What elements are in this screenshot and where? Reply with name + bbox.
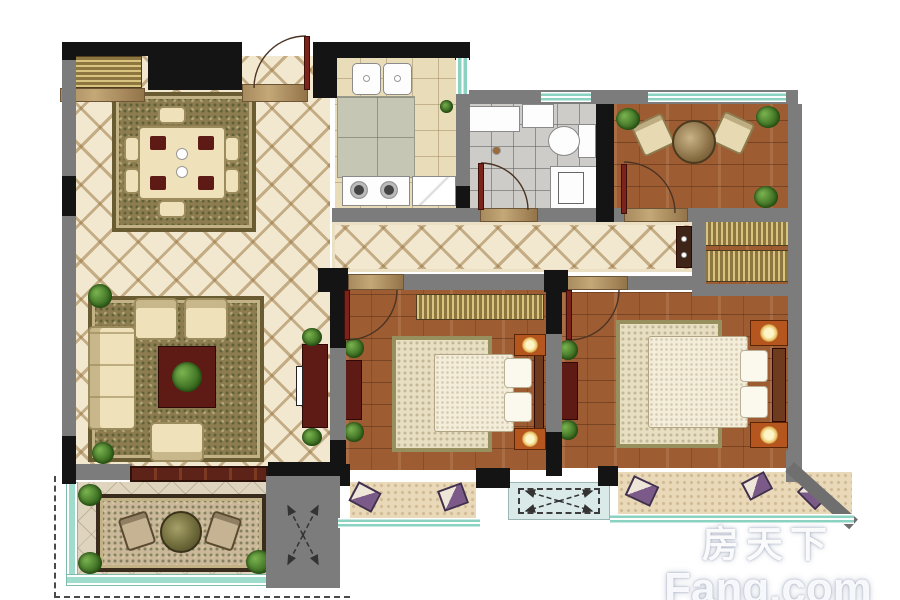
wall-segment xyxy=(76,464,132,480)
dresser xyxy=(344,360,362,420)
wardrobe xyxy=(416,294,544,320)
wall-pier xyxy=(335,42,458,58)
bed-mattress xyxy=(648,336,748,428)
wall-pier xyxy=(148,42,242,90)
wall-segment xyxy=(692,208,706,290)
wall-segment xyxy=(62,42,76,484)
bed-headboard xyxy=(534,352,544,436)
window xyxy=(541,92,591,102)
bed-mattress xyxy=(434,354,514,432)
wall-segment xyxy=(330,348,346,440)
plant-icon xyxy=(172,362,202,392)
wall-pier xyxy=(62,176,76,216)
wall-segment xyxy=(538,208,596,222)
plant-icon xyxy=(344,422,364,442)
wall-pier xyxy=(62,436,76,484)
dining-chair xyxy=(124,168,140,194)
wardrobe-cabinet xyxy=(702,250,794,282)
plant-icon xyxy=(754,186,778,208)
wall-pier xyxy=(62,42,150,56)
plant-icon xyxy=(92,442,114,464)
lamp-icon xyxy=(522,337,538,353)
tv-cabinet xyxy=(302,344,328,428)
cabinet-knob xyxy=(681,236,687,242)
balcony-boundary-dashed xyxy=(54,476,56,598)
armchair xyxy=(150,422,204,462)
toilet-tank xyxy=(578,124,596,158)
pillow xyxy=(740,350,768,382)
wall-segment xyxy=(692,284,798,296)
sink-drain xyxy=(394,75,401,82)
pillow xyxy=(504,392,532,422)
bed-headboard xyxy=(772,348,786,422)
wall-segment xyxy=(332,208,480,222)
balcony-glass-wall xyxy=(66,574,274,586)
wall-pier xyxy=(546,290,562,334)
dining-chair xyxy=(158,200,186,218)
dining-chair xyxy=(158,106,186,124)
wall-segment xyxy=(546,334,562,432)
plant-icon xyxy=(756,106,780,128)
bay-window-glass xyxy=(338,518,480,528)
plant-icon xyxy=(440,100,453,113)
round-tea-table xyxy=(672,120,716,164)
plant-icon xyxy=(302,428,322,446)
entry-threshold xyxy=(242,84,308,102)
dining-chair xyxy=(224,168,240,194)
wall-pier xyxy=(544,270,568,292)
window xyxy=(648,92,786,102)
pillow xyxy=(504,358,532,388)
leisure-threshold xyxy=(624,208,688,222)
dining-chair xyxy=(124,136,140,162)
balcony-sliding-door xyxy=(130,466,268,482)
plant-icon xyxy=(78,552,102,574)
stove-burner xyxy=(350,181,368,199)
balcony-glass-wall xyxy=(66,482,78,586)
pillow xyxy=(740,386,768,418)
dresser xyxy=(560,362,578,420)
bedroom-master-threshold xyxy=(566,276,628,290)
lamp-icon xyxy=(522,431,538,447)
watermark: 房天下 Fang.com xyxy=(648,514,888,600)
tv-screen xyxy=(296,366,303,406)
refrigerator xyxy=(412,176,456,206)
sideboard xyxy=(72,56,142,88)
wall-pier xyxy=(596,104,614,222)
bathroom-door-leaf xyxy=(478,163,484,210)
plant-icon xyxy=(302,328,322,346)
sink-drain xyxy=(363,75,370,82)
platform-x-symbol xyxy=(518,488,600,514)
lamp-icon xyxy=(760,426,778,444)
plant-icon xyxy=(88,284,112,308)
window xyxy=(456,58,469,94)
entry-door-leaf xyxy=(304,36,310,90)
plant-icon xyxy=(344,338,364,358)
watermark-chinese: 房天下 xyxy=(648,514,888,568)
watermark-fang-logo: Fang.com xyxy=(648,564,888,600)
wall-pier xyxy=(546,432,562,476)
bedroom-master-door-leaf xyxy=(566,290,572,340)
leisure-door-leaf xyxy=(621,164,627,214)
bedroom-middle-threshold xyxy=(348,274,404,290)
plant-icon xyxy=(78,484,102,506)
washer-counter xyxy=(468,106,520,132)
floor-plan: 房天下 Fang.com xyxy=(0,0,900,600)
bathroom-threshold xyxy=(480,208,538,222)
wall-pier xyxy=(313,42,337,98)
wall-pier xyxy=(598,466,618,486)
placemat xyxy=(198,176,214,190)
wall-segment xyxy=(628,276,694,290)
bedroom-middle-door-leaf xyxy=(344,290,350,340)
placemat xyxy=(150,176,166,190)
balcony-boundary-dashed xyxy=(54,596,350,598)
stove-burner xyxy=(380,181,398,199)
plant-icon xyxy=(616,108,640,130)
floor-drain xyxy=(492,146,501,155)
shaft-frame xyxy=(266,476,340,588)
armchair xyxy=(134,298,178,340)
placemat xyxy=(198,136,214,150)
sofa xyxy=(88,326,136,430)
wall-pier xyxy=(476,468,510,488)
bath-shelf xyxy=(522,104,554,128)
kitchen-counter xyxy=(337,96,415,178)
lamp-icon xyxy=(760,324,778,342)
cabinet-knob xyxy=(681,252,687,258)
plate xyxy=(176,148,188,160)
corridor-floor xyxy=(332,222,692,272)
armchair xyxy=(184,298,228,340)
placemat xyxy=(150,136,166,150)
plate xyxy=(176,166,188,178)
vanity-basin xyxy=(558,172,584,204)
wall-segment xyxy=(404,274,546,290)
toilet-bowl xyxy=(548,126,580,156)
corridor-end-cabinet xyxy=(676,226,692,268)
balcony-tea-table xyxy=(160,511,202,553)
dining-chair xyxy=(224,136,240,162)
